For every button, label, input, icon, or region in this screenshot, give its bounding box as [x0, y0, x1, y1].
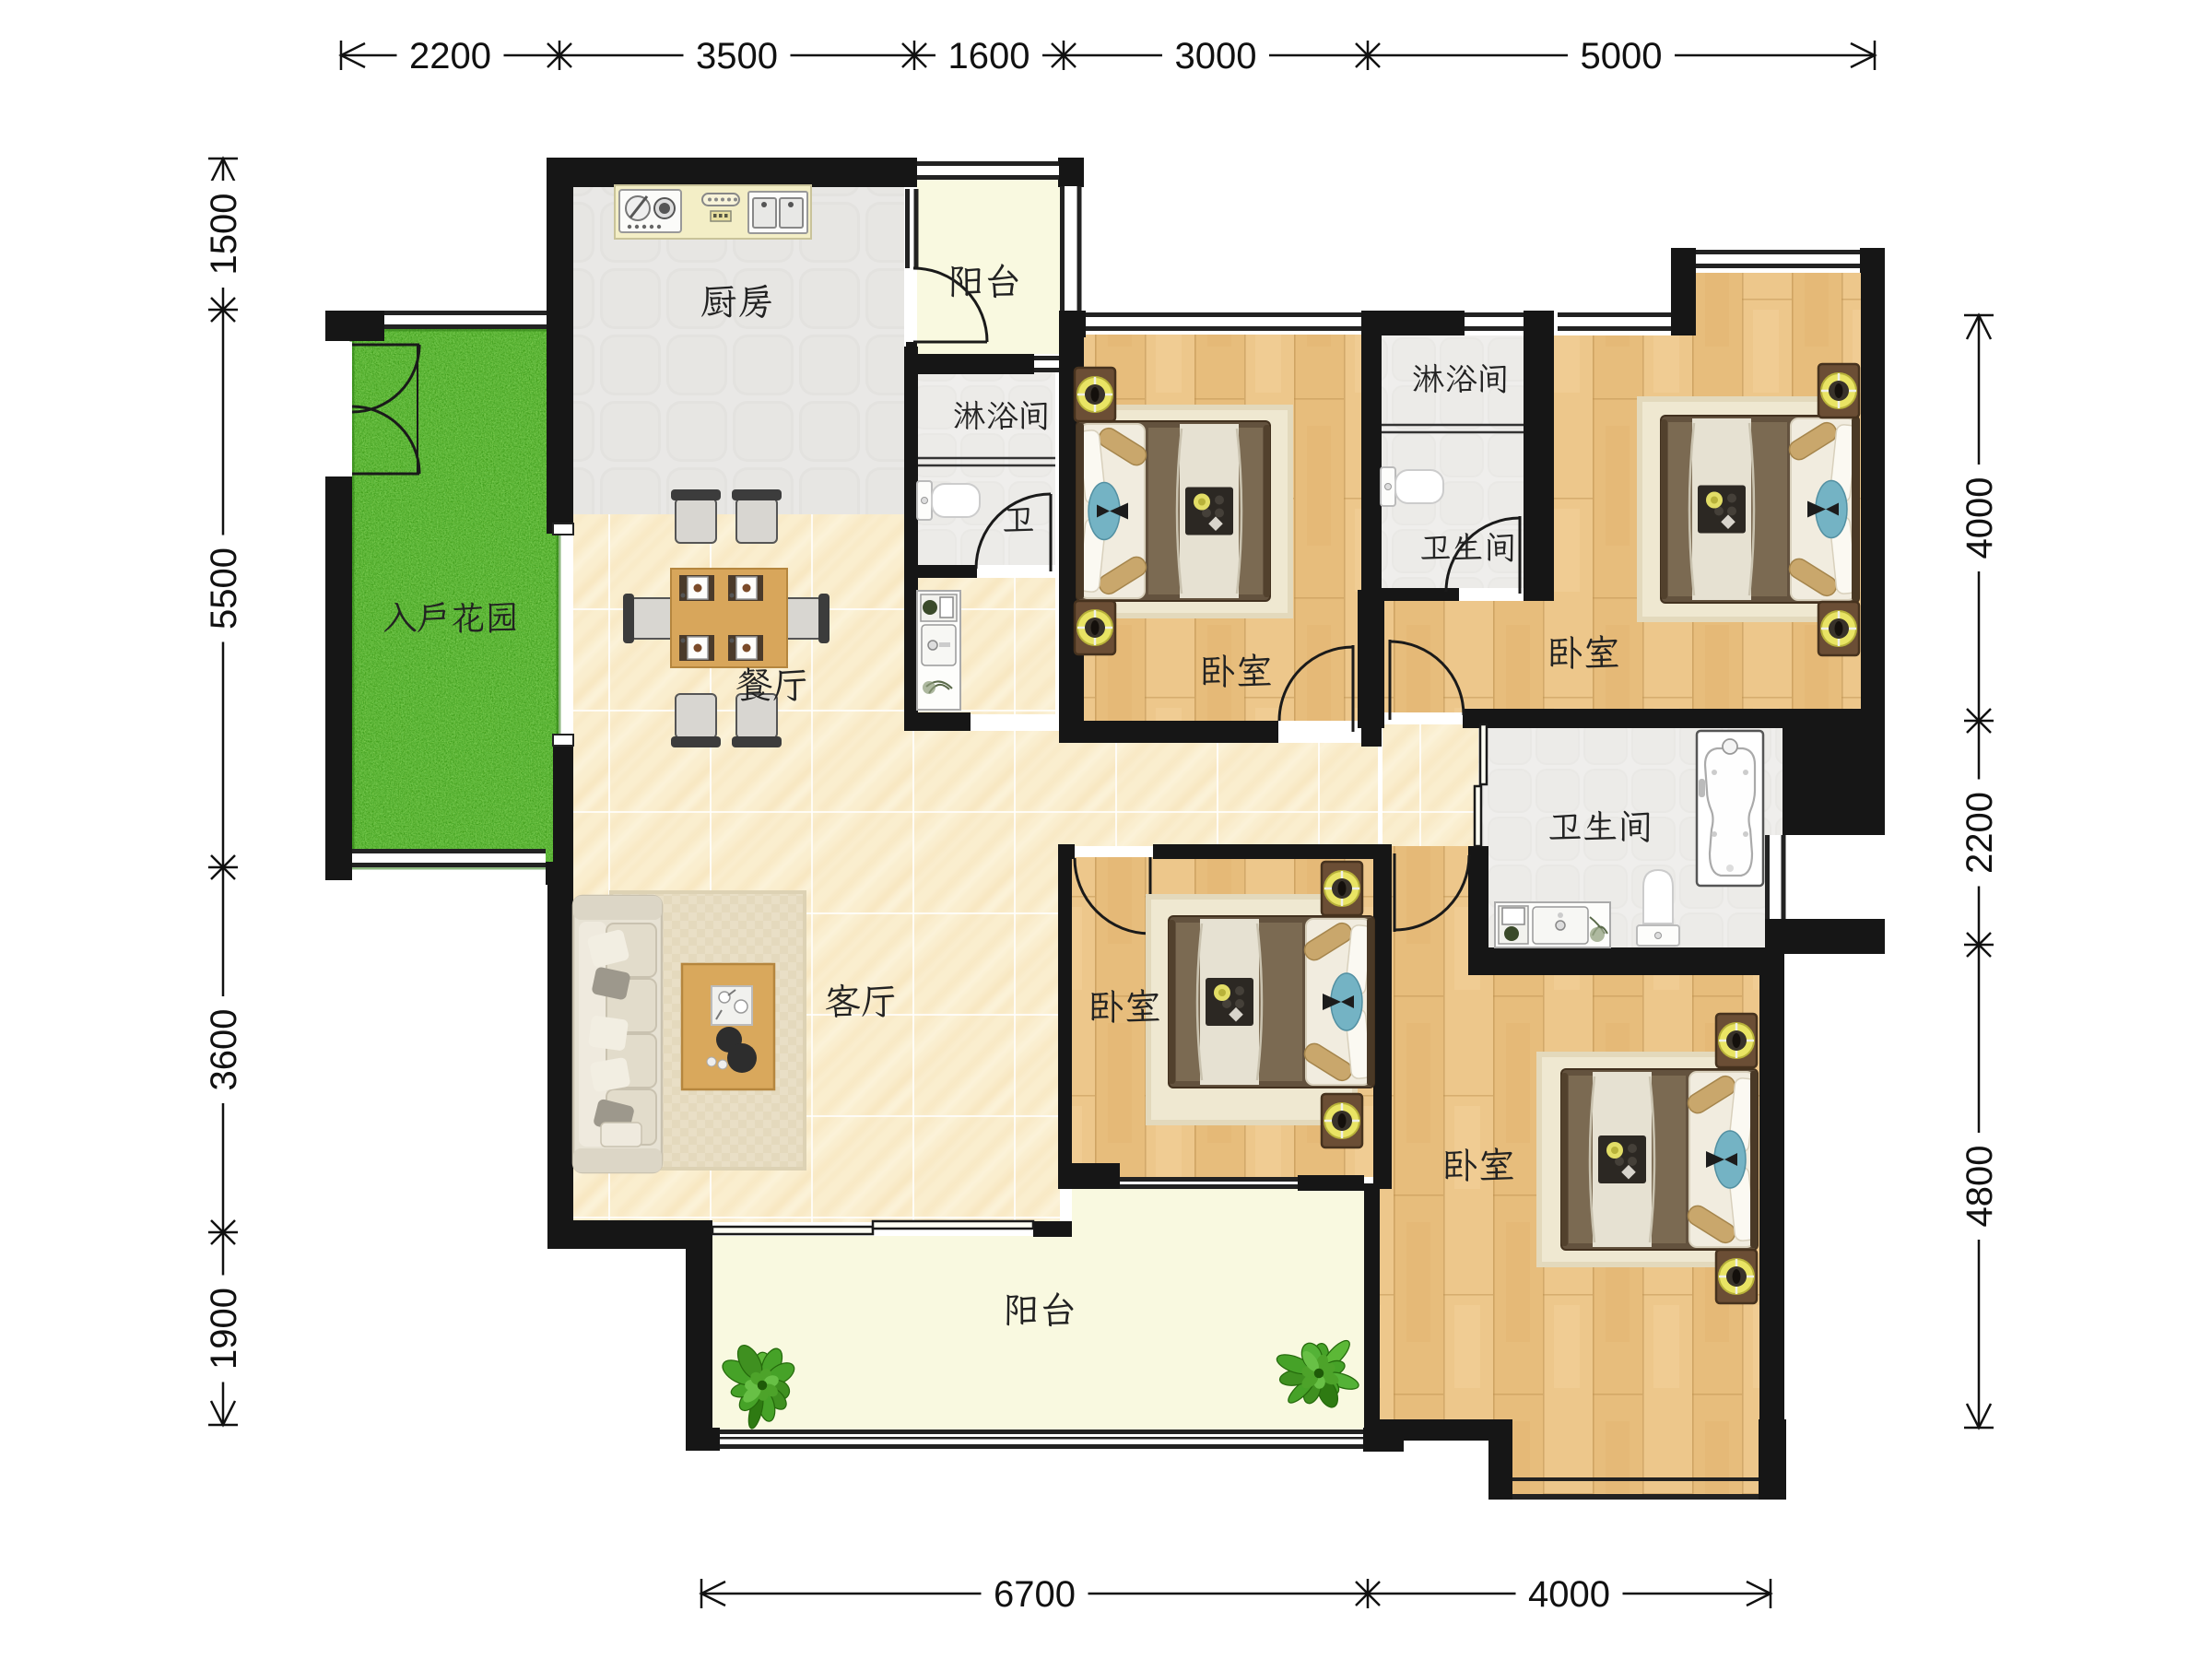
svg-text:2200: 2200 [409, 36, 491, 76]
svg-text:5500: 5500 [204, 547, 244, 629]
svg-text:4000: 4000 [1528, 1574, 1610, 1615]
svg-text:1600: 1600 [948, 36, 1030, 76]
svg-text:1500: 1500 [204, 194, 244, 276]
svg-text:2200: 2200 [1959, 792, 2000, 874]
svg-text:5000: 5000 [1581, 36, 1663, 76]
svg-text:1900: 1900 [204, 1288, 244, 1370]
svg-text:4000: 4000 [1959, 477, 2000, 559]
svg-text:6700: 6700 [994, 1574, 1076, 1615]
svg-text:3000: 3000 [1175, 36, 1257, 76]
svg-text:3500: 3500 [696, 36, 778, 76]
svg-text:3600: 3600 [204, 1009, 244, 1091]
svg-text:4800: 4800 [1959, 1146, 2000, 1228]
